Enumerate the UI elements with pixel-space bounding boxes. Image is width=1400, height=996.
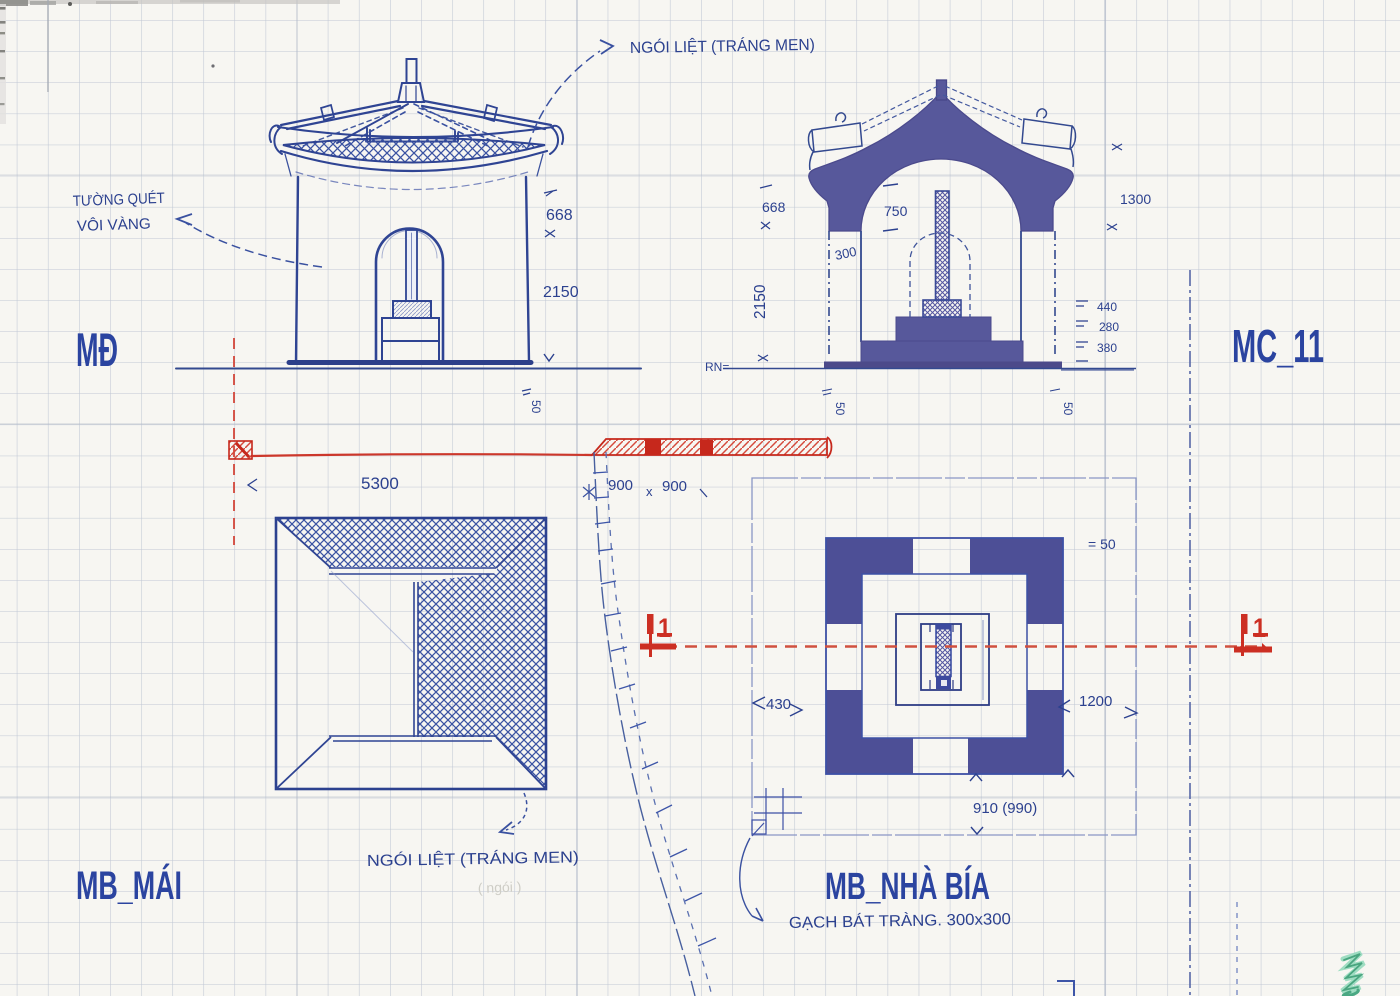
svg-text:= 50: = 50 xyxy=(1088,536,1116,552)
svg-text:668: 668 xyxy=(762,199,786,215)
svg-text:668: 668 xyxy=(546,207,573,224)
svg-text:MB_NHÀ BÍA: MB_NHÀ BÍA xyxy=(825,864,990,908)
svg-text:1: 1 xyxy=(658,613,671,643)
svg-text:50: 50 xyxy=(833,402,847,416)
svg-text:910 (990): 910 (990) xyxy=(973,800,1037,817)
svg-text:2150: 2150 xyxy=(752,284,769,319)
svg-text:50: 50 xyxy=(529,400,543,414)
svg-text:900: 900 xyxy=(608,477,633,494)
svg-text:440: 440 xyxy=(1097,300,1117,314)
svg-text:380: 380 xyxy=(1097,341,1117,355)
svg-text:x: x xyxy=(646,484,653,499)
svg-text:( ngói ): ( ngói ) xyxy=(478,878,522,896)
svg-text:VÔI VÀNG: VÔI VÀNG xyxy=(77,215,152,235)
svg-text:TƯỜNG QUÉT: TƯỜNG QUÉT xyxy=(73,190,166,210)
svg-text:2150: 2150 xyxy=(543,284,579,301)
svg-text:MĐ: MĐ xyxy=(76,323,118,376)
svg-text:280: 280 xyxy=(1099,320,1119,334)
svg-text:430: 430 xyxy=(766,696,791,713)
svg-text:1: 1 xyxy=(1253,613,1266,643)
svg-text:RN=: RN= xyxy=(705,360,729,374)
svg-text:50: 50 xyxy=(1061,402,1075,416)
svg-text:750: 750 xyxy=(884,203,908,219)
svg-text:1300: 1300 xyxy=(1120,191,1151,207)
svg-text:5300: 5300 xyxy=(361,474,399,493)
svg-text:MB_MÁI: MB_MÁI xyxy=(76,863,182,908)
svg-text:MC_11: MC_11 xyxy=(1232,320,1324,372)
svg-text:1200: 1200 xyxy=(1079,693,1112,710)
svg-text:900: 900 xyxy=(662,478,687,495)
